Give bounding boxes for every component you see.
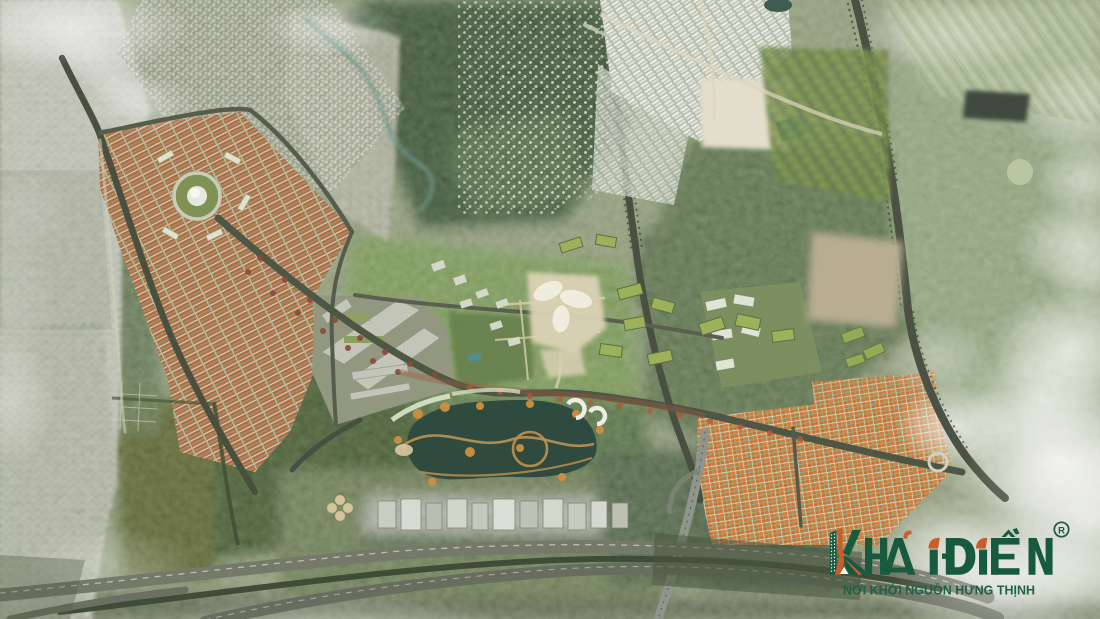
svg-text:NƠI KHỞI NGUỒN HƯNG THỊNH: NƠI KHỞI NGUỒN HƯNG THỊNH — [843, 583, 1035, 598]
svg-text:R: R — [1058, 524, 1065, 535]
